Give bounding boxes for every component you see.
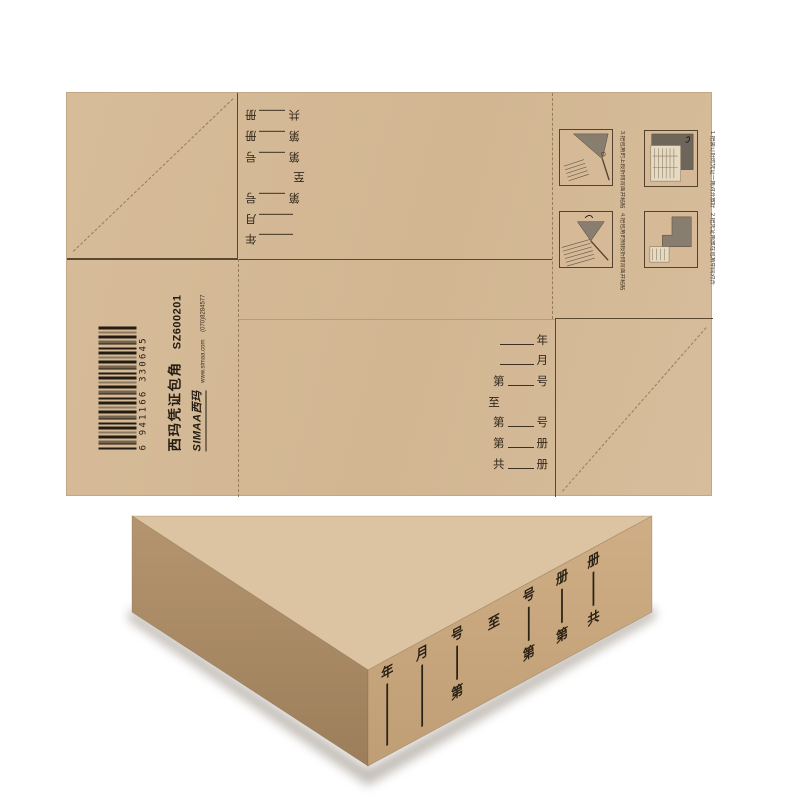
field-prefix: 第 xyxy=(451,678,463,705)
field-number-from: 号 第 xyxy=(448,617,465,722)
vertical-fold-line-left xyxy=(238,259,239,497)
field-label: 年 xyxy=(381,658,393,685)
diagonal-fold-line xyxy=(562,327,707,491)
fold-step-illustration xyxy=(560,212,612,267)
field-prefix: 共 xyxy=(587,604,599,631)
field-number-to: 第号 xyxy=(466,410,548,431)
blank-line xyxy=(593,571,594,606)
blank-line xyxy=(260,131,286,133)
kraft-sheet: 年 月 第号 至 第号 第册 共册 年 月 第号 至 第号 第册 共册 6 94… xyxy=(66,92,712,496)
field-label: 年 xyxy=(537,332,549,348)
field-book-no: 册 第 xyxy=(553,560,570,665)
field-prefix: 第 xyxy=(493,373,505,389)
field-book-total: 共册 xyxy=(245,107,327,128)
field-year: 年 xyxy=(245,231,327,252)
instruction-diagram-3 xyxy=(559,129,613,186)
blank-line xyxy=(422,664,423,727)
field-label: 册 xyxy=(587,546,599,573)
instruction-caption-2: 2.把凭证角放在包角中间对齐 xyxy=(702,213,715,291)
blank-line xyxy=(457,645,458,680)
field-label: 册 xyxy=(537,456,549,472)
blank-line xyxy=(508,425,534,427)
field-to: 至 xyxy=(466,389,548,410)
field-to: 至 xyxy=(485,597,502,702)
website: www.simaa.com xyxy=(201,340,207,383)
product-photo: 年 月 第号 至 第号 第册 共册 年 月 第号 至 第号 第册 共册 6 94… xyxy=(0,0,800,800)
field-label: 册 xyxy=(245,107,257,123)
field-year: 年 xyxy=(466,327,548,348)
brand-logo: SIMAA西玛 xyxy=(189,391,207,452)
instruction-diagram-1 xyxy=(644,130,698,187)
field-prefix: 第 xyxy=(493,414,505,430)
blank-line xyxy=(260,110,286,112)
field-book-total: 共册 xyxy=(466,451,548,472)
blank-line xyxy=(528,607,529,642)
blank-line xyxy=(500,343,534,345)
blank-line xyxy=(260,193,286,195)
blank-line xyxy=(508,384,534,386)
product-code: SZ600201 xyxy=(172,295,184,350)
barcode xyxy=(99,326,137,450)
instruction-caption-4: 4.把包角的侧段折向背面并粘贴 xyxy=(612,213,625,291)
field-prefix: 第 xyxy=(523,640,535,667)
field-prefix: 第 xyxy=(289,148,301,164)
field-label: 号 xyxy=(245,148,257,164)
field-label: 号 xyxy=(523,582,535,609)
field-prefix: 第 xyxy=(289,128,301,144)
field-label: 号 xyxy=(537,414,549,430)
field-prefix: 共 xyxy=(493,456,505,472)
field-prefix: 第 xyxy=(493,435,505,451)
top-left-fold-panel xyxy=(67,93,238,259)
spine-fields-rotated: 年 月 第号 至 第号 第册 共册 xyxy=(245,107,327,252)
field-label: 月 xyxy=(245,210,257,226)
field-number-from: 第号 xyxy=(245,190,327,211)
folded-corner-wedge: 年 月 号 第 至 号 第 册 第 xyxy=(120,500,680,800)
field-prefix: 共 xyxy=(289,107,301,123)
blank-line xyxy=(561,589,562,624)
field-label: 至 xyxy=(293,169,305,185)
blank-line xyxy=(508,467,534,469)
field-book-total: 册 共 xyxy=(585,543,602,648)
hook-arrow-icon xyxy=(585,215,593,217)
barcode-digits: 6 941166 330645 xyxy=(139,295,149,451)
field-label: 至 xyxy=(488,608,500,635)
field-year: 年 xyxy=(378,655,395,760)
field-number-to: 号 第 xyxy=(520,578,537,683)
field-label: 月 xyxy=(537,352,549,368)
field-prefix: 第 xyxy=(556,621,568,648)
horizontal-crease-line xyxy=(238,319,555,320)
blank-line xyxy=(260,213,294,215)
blank-line xyxy=(260,234,294,236)
field-label: 号 xyxy=(537,373,549,389)
field-to: 至 xyxy=(245,169,327,190)
instruction-diagram-2 xyxy=(644,211,698,268)
field-month: 月 xyxy=(413,636,430,741)
spine-fields: 年 月 第号 至 第号 第册 共册 xyxy=(466,327,548,472)
field-number-to: 第号 xyxy=(245,148,327,169)
field-book-no: 第册 xyxy=(466,430,548,451)
field-label: 年 xyxy=(245,231,257,247)
vertical-fold-line-right xyxy=(552,93,553,319)
field-label: 册 xyxy=(245,128,257,144)
field-label: 号 xyxy=(245,190,257,206)
field-prefix: 第 xyxy=(289,190,301,206)
field-label: 册 xyxy=(537,435,549,451)
instruction-caption-3: 3.把包角的上段折向背面并粘贴 xyxy=(612,131,625,209)
fold-step-illustration xyxy=(645,131,697,186)
instruction-caption-1: 1.把装订好的凭证一角对齐放好 xyxy=(702,131,715,209)
branding-block: 6 941166 330645 西玛凭证包角 SZ600201 SIMAA西玛 … xyxy=(99,295,207,452)
field-month: 月 xyxy=(466,348,548,369)
horizontal-fold-line xyxy=(67,259,552,260)
fold-step-illustration xyxy=(645,212,697,267)
field-label: 至 xyxy=(488,394,500,410)
field-label: 册 xyxy=(556,563,568,590)
blank-line xyxy=(508,446,534,448)
diagonal-fold-line xyxy=(73,98,233,251)
bottom-right-fold-panel xyxy=(555,318,713,497)
field-label: 号 xyxy=(451,620,463,647)
field-month: 月 xyxy=(245,210,327,231)
blank-line xyxy=(387,683,388,746)
blank-line xyxy=(260,151,286,153)
field-number-from: 第号 xyxy=(466,368,548,389)
instruction-diagram-4 xyxy=(559,211,613,268)
field-label: 月 xyxy=(416,639,428,666)
product-name: 西玛凭证包角 xyxy=(164,362,184,452)
product-name-row: 西玛凭证包角 SZ600201 xyxy=(164,295,184,452)
blank-line xyxy=(500,363,534,365)
phone: (070)8284577 xyxy=(201,295,207,332)
brand-row: SIMAA西玛 www.simaa.com (070)8284577 xyxy=(189,295,207,452)
fold-step-illustration xyxy=(560,130,612,185)
field-book-no: 第册 xyxy=(245,128,327,149)
